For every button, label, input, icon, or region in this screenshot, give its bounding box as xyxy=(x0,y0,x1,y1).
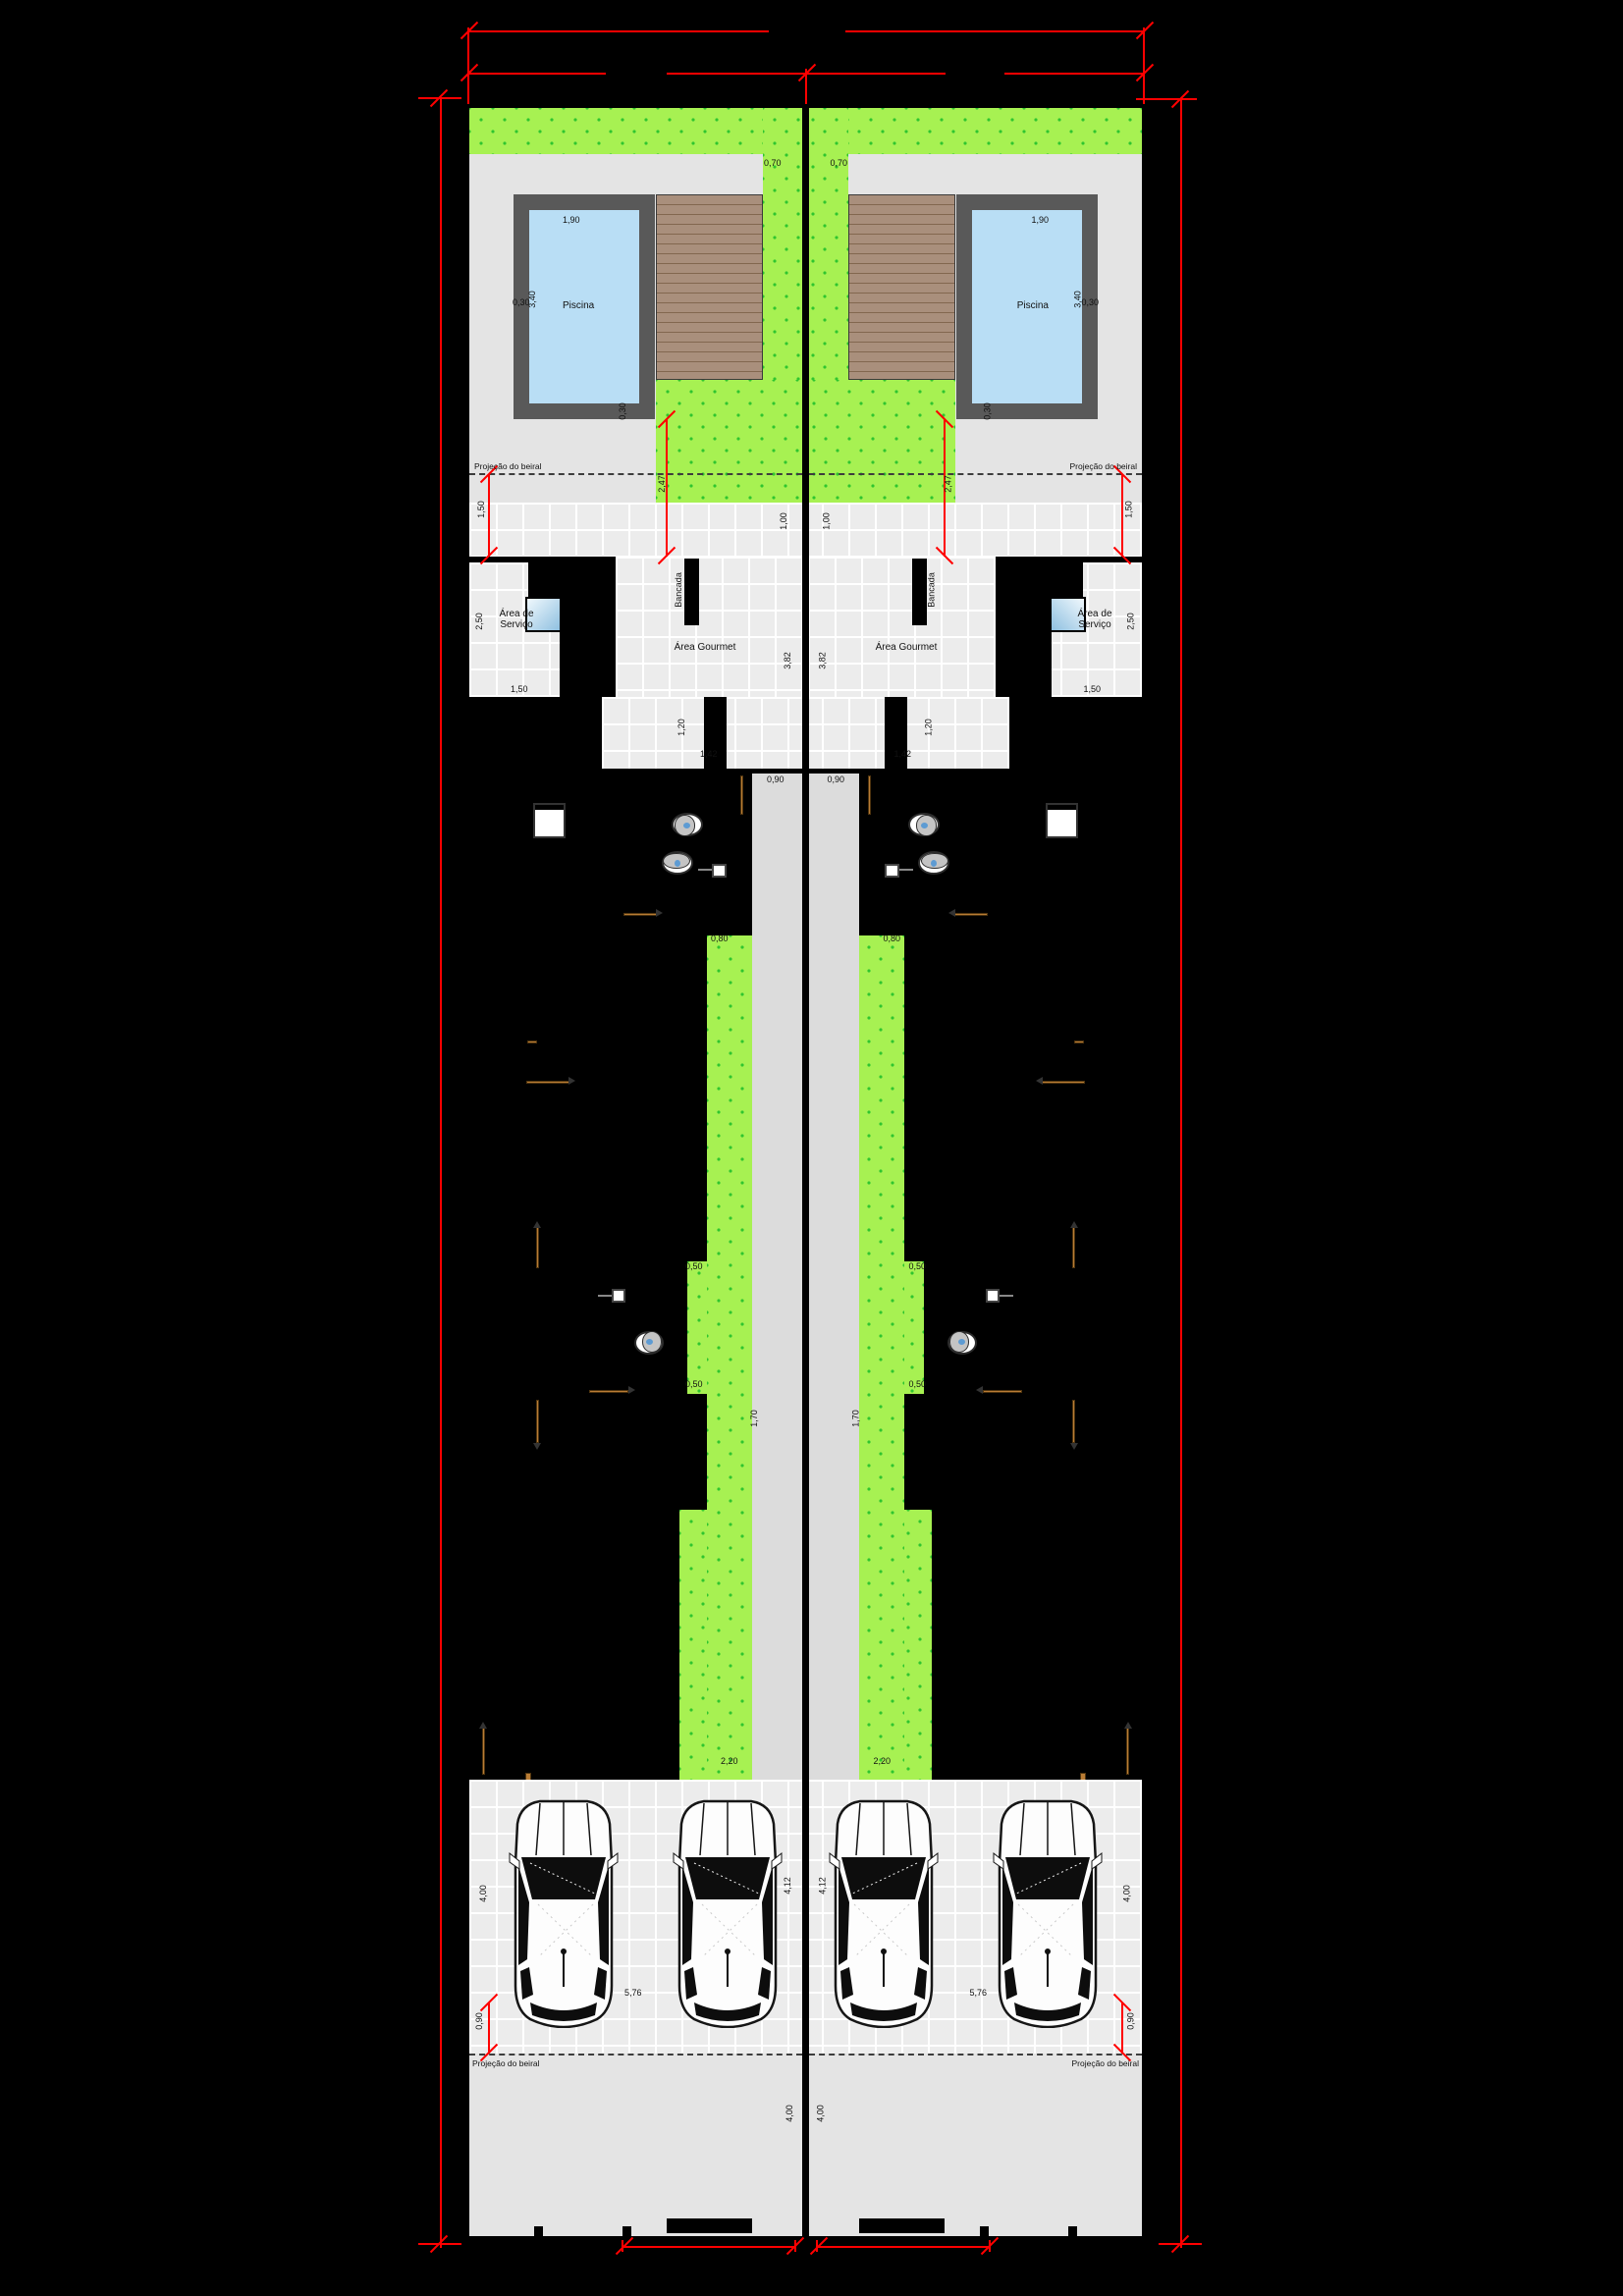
dim-label: 4,00 xyxy=(479,1885,489,1902)
gate-slab xyxy=(859,2218,945,2233)
dim-line xyxy=(488,474,490,557)
dim-line-bottom xyxy=(622,2246,795,2248)
car-top-view xyxy=(509,1794,619,2028)
patio-tiles xyxy=(809,503,1142,557)
note-label: Projeção do beiral xyxy=(472,2059,540,2068)
washer-icon xyxy=(1046,803,1078,838)
patio-tiles xyxy=(469,503,802,557)
washer-icon xyxy=(533,803,566,838)
eave-projection-line xyxy=(469,473,802,475)
shower-arm xyxy=(899,869,913,871)
counter xyxy=(684,559,699,625)
toilet-icon xyxy=(662,851,693,875)
dim-label: 0,50 xyxy=(685,1262,703,1272)
door-swing-icon xyxy=(740,775,743,815)
toilet-icon xyxy=(947,1331,977,1355)
dim-label: 0,80 xyxy=(711,934,729,944)
door-arrow-icon xyxy=(1124,1718,1132,1729)
gourmet-room-floor xyxy=(809,557,996,697)
door-arrow-icon xyxy=(628,1386,639,1394)
dim-label: 4,00 xyxy=(816,2105,826,2122)
door-swing-icon xyxy=(1074,1041,1084,1043)
door-swing-icon xyxy=(1042,1081,1085,1084)
dim-label: 0,70 xyxy=(830,159,847,169)
dim-label: 1,20 xyxy=(924,719,934,736)
door-swing-icon xyxy=(536,1225,539,1268)
dim-line-top xyxy=(845,30,1144,32)
counter xyxy=(912,559,927,625)
toilet-icon xyxy=(672,813,703,836)
dim-label: 2,47 xyxy=(944,475,953,493)
dim-line-top xyxy=(1004,73,1144,75)
dim-label: 1,70 xyxy=(851,1410,861,1427)
note-label: Projeção do beiral xyxy=(1071,2059,1139,2068)
lawn-side-strip xyxy=(707,935,752,1783)
dim-label: 0,50 xyxy=(685,1380,703,1390)
dim-line-top xyxy=(468,30,769,32)
dim-line xyxy=(488,2002,490,2054)
door-swing-icon xyxy=(526,1081,569,1084)
toilet-icon xyxy=(918,851,949,875)
dim-label: 5,76 xyxy=(969,1989,987,1999)
lawn-side-strip xyxy=(687,1261,707,1394)
door-swing-icon xyxy=(983,1390,1022,1393)
dim-label: 4,12 xyxy=(784,1877,793,1895)
gate-slab xyxy=(667,2218,752,2233)
dim-label: 3,40 xyxy=(528,291,538,308)
dim-label: 2,47 xyxy=(658,475,668,493)
lawn-under-deck xyxy=(809,380,955,503)
door-arrow-icon xyxy=(568,1077,579,1085)
gate-notch xyxy=(534,2226,543,2236)
dim-extension xyxy=(1143,27,1145,104)
lawn-side-strip xyxy=(904,1261,924,1394)
dim-line-bottom xyxy=(817,2246,990,2248)
dim-label: 1,42 xyxy=(893,750,911,760)
dim-label: 0,90 xyxy=(827,775,844,785)
lot-right: 1,90 0,30 3,40 Piscina 0,30 0,70 2,47 Pr… xyxy=(809,106,1142,2240)
door-swing-icon xyxy=(536,1400,539,1443)
counter-label: Bancada xyxy=(675,572,684,608)
dim-label: 1,00 xyxy=(822,512,832,530)
shower-arm xyxy=(698,869,712,871)
door-arrow-icon xyxy=(945,909,955,917)
dim-label: 0,50 xyxy=(908,1262,926,1272)
dim-label: 1,90 xyxy=(1031,216,1049,226)
note-label: Projeção do beiral xyxy=(1069,462,1137,471)
dim-label: 1,42 xyxy=(700,750,718,760)
room-label-gourmet: Área Gourmet xyxy=(651,642,759,653)
gate-notch xyxy=(1068,2226,1077,2236)
room-label-pool: Piscina xyxy=(1017,300,1049,311)
lawn-side-strip xyxy=(679,1510,707,1783)
lot-left: 1,90 0,30 3,40 Piscina 0,30 0,70 2,47 Pr… xyxy=(469,106,802,2240)
dim-label: 2,20 xyxy=(873,1757,891,1767)
dim-label: 0,30 xyxy=(983,402,993,420)
toilet-icon xyxy=(634,1331,664,1355)
dim-label: 1,50 xyxy=(477,501,487,518)
dim-tick xyxy=(1136,98,1197,100)
pool-deck xyxy=(656,194,763,380)
shower-icon xyxy=(612,1289,625,1303)
lawn-under-deck xyxy=(656,380,802,503)
dim-label: 0,30 xyxy=(619,402,628,420)
dim-label: 2,20 xyxy=(721,1757,738,1767)
dim-label: 1,50 xyxy=(511,685,528,695)
door-swing-icon xyxy=(868,775,871,815)
door-arrow-icon xyxy=(972,1386,983,1394)
dim-label: 0,90 xyxy=(767,775,784,785)
dim-label: 0,90 xyxy=(1126,2012,1136,2030)
door-swing-icon xyxy=(1072,1400,1075,1443)
car-top-view xyxy=(829,1794,939,2028)
door-arrow-icon xyxy=(533,1443,541,1454)
door-swing-icon xyxy=(482,1726,485,1775)
dim-label: 1,50 xyxy=(1083,685,1101,695)
gate-notch xyxy=(622,2226,631,2236)
eave-projection-line xyxy=(469,2054,802,2056)
toilet-icon xyxy=(908,813,940,836)
dim-label: 4,00 xyxy=(785,2105,795,2122)
door-arrow-icon xyxy=(1070,1443,1078,1454)
dim-label: 1,70 xyxy=(750,1410,760,1427)
side-walkway xyxy=(809,774,859,1780)
dim-label: 5,76 xyxy=(624,1989,642,1999)
car-top-view xyxy=(673,1794,783,2028)
door-swing-icon xyxy=(527,1041,537,1043)
dim-line-left-boundary xyxy=(440,98,442,2248)
dim-label: 1,50 xyxy=(1124,501,1134,518)
dim-label: 2,50 xyxy=(475,613,485,630)
car-top-view xyxy=(993,1794,1103,2028)
dim-extension xyxy=(805,69,807,104)
dim-label: 4,12 xyxy=(818,1877,828,1895)
dim-label: 1,20 xyxy=(677,719,687,736)
eave-projection-line xyxy=(809,2054,1142,2056)
side-walkway xyxy=(752,774,802,1780)
lawn-side-strip xyxy=(859,935,904,1783)
room-label-gourmet: Área Gourmet xyxy=(852,642,960,653)
dim-label: 1,90 xyxy=(563,216,580,226)
dim-label: 0,50 xyxy=(908,1380,926,1390)
door-arrow-icon xyxy=(533,1217,541,1228)
door-arrow-icon xyxy=(1070,1217,1078,1228)
dim-line xyxy=(1121,2002,1123,2054)
dim-label: 0,90 xyxy=(475,2012,485,2030)
eave-projection-line xyxy=(809,473,1142,475)
room-label-pool: Piscina xyxy=(563,300,594,311)
driveway xyxy=(809,2054,1142,2236)
gourmet-room-floor xyxy=(616,557,802,697)
lawn-band-top xyxy=(809,108,1142,154)
dim-label: 0,70 xyxy=(764,159,782,169)
shower-icon xyxy=(885,864,899,878)
lawn-band-top xyxy=(469,108,802,154)
room-label-service: Área de Serviço xyxy=(1063,609,1126,630)
door-swing-icon xyxy=(1072,1225,1075,1268)
dim-label: 3,40 xyxy=(1073,291,1083,308)
shower-icon xyxy=(986,1289,1000,1303)
pool-deck xyxy=(848,194,955,380)
shower-arm xyxy=(1000,1295,1013,1297)
dim-label: 1,00 xyxy=(780,512,789,530)
dim-label: 2,50 xyxy=(1126,613,1136,630)
door-arrow-icon xyxy=(1032,1077,1043,1085)
counter-label: Bancada xyxy=(927,572,937,608)
note-label: Projeção do beiral xyxy=(474,462,542,471)
door-swing-icon xyxy=(623,913,657,916)
dim-extension xyxy=(467,27,469,104)
door-swing-icon xyxy=(1126,1726,1129,1775)
door-arrow-icon xyxy=(656,909,667,917)
dim-label: 0,30 xyxy=(1081,298,1099,308)
gate-notch xyxy=(980,2226,989,2236)
dim-label: 3,82 xyxy=(818,652,828,669)
room-label-service: Área de Serviço xyxy=(485,609,548,630)
door-arrow-icon xyxy=(479,1718,487,1729)
door-swing-icon xyxy=(589,1390,628,1393)
dim-line-right-boundary xyxy=(1180,99,1182,2248)
shower-icon xyxy=(712,864,727,878)
shower-arm xyxy=(598,1295,612,1297)
site-plan-canvas: 1,90 0,30 3,40 Piscina 0,30 0,70 2,47 Pr… xyxy=(0,0,1623,2296)
driveway xyxy=(469,2054,802,2236)
dim-label: 4,00 xyxy=(1122,1885,1132,1902)
door-swing-icon xyxy=(954,913,988,916)
dim-line-top xyxy=(468,73,606,75)
dim-label: 0,80 xyxy=(883,934,900,944)
dim-label: 3,82 xyxy=(784,652,793,669)
lawn-side-strip xyxy=(904,1510,932,1783)
